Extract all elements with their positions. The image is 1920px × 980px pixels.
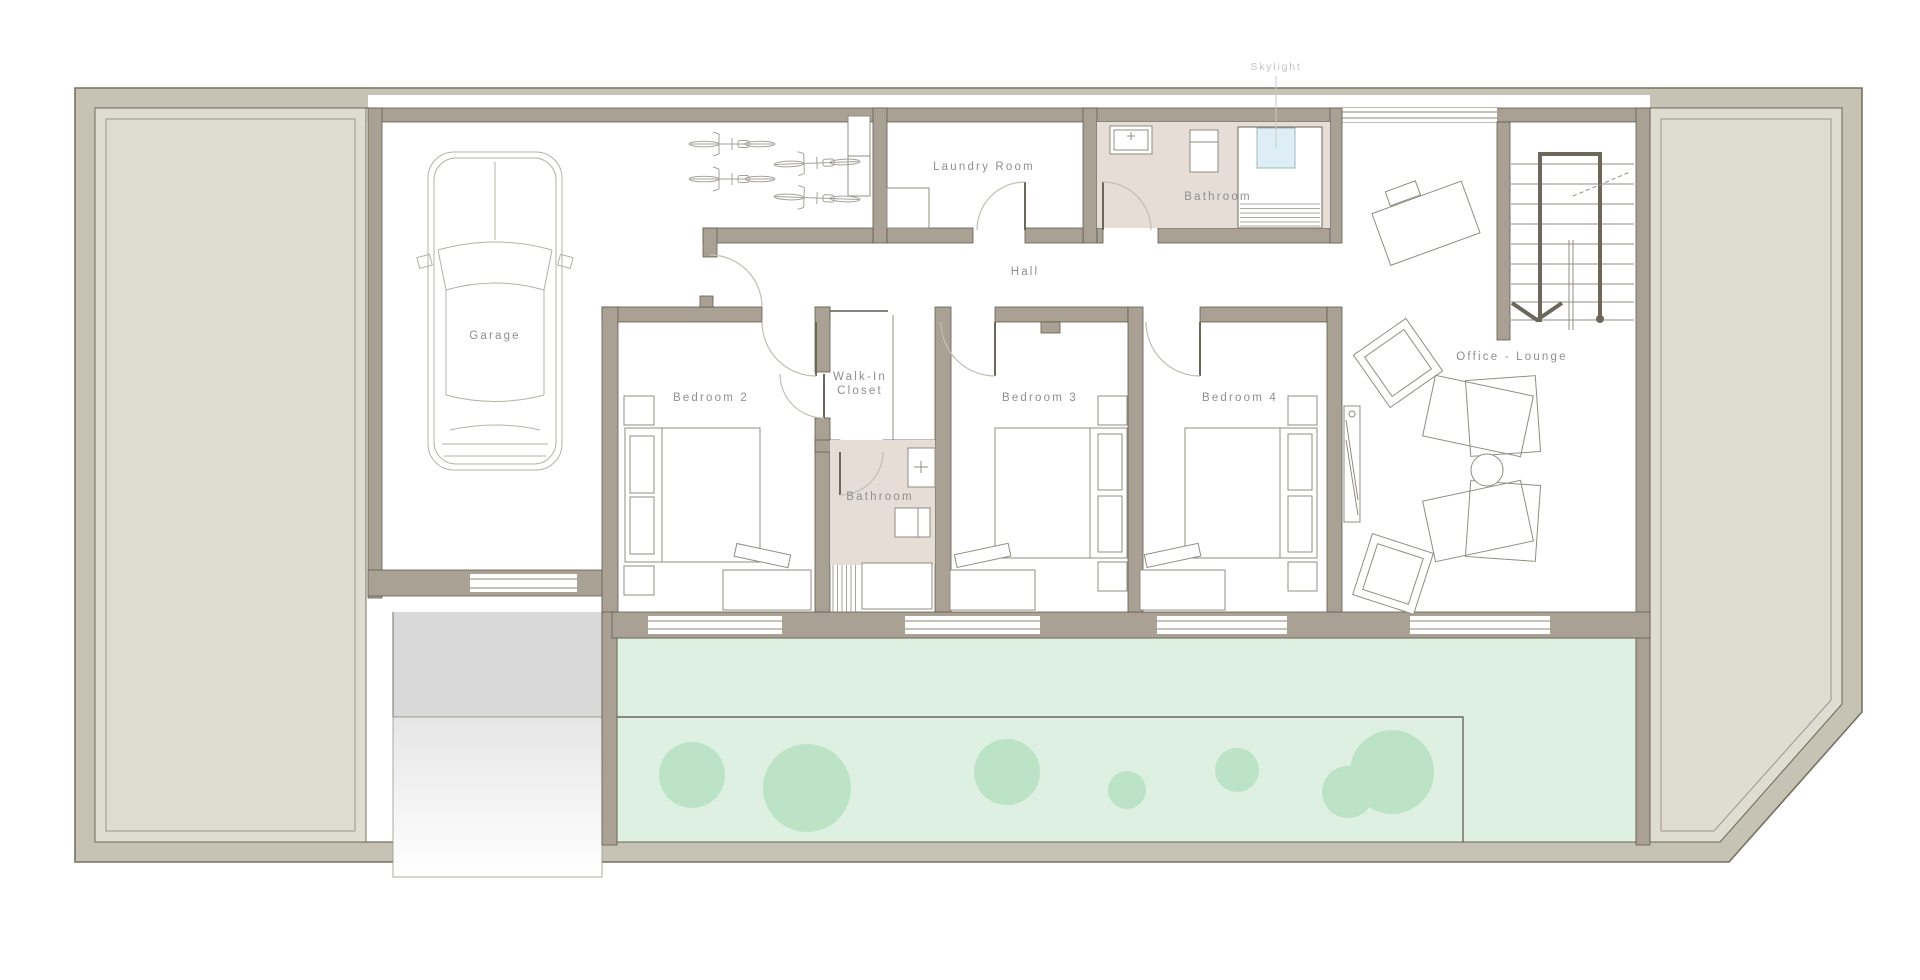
nightstand-icon xyxy=(624,396,654,425)
bathroom-top-label: Bathroom xyxy=(1184,191,1251,203)
side-table-icon xyxy=(1471,454,1503,486)
west-wall xyxy=(368,108,382,598)
nightstand-icon xyxy=(1098,562,1127,591)
hall-label: Hall xyxy=(1011,266,1040,278)
bedroom4-window xyxy=(1157,616,1287,634)
bathtub-icon xyxy=(862,563,932,609)
driveway xyxy=(393,598,602,877)
nightstand-icon xyxy=(1288,396,1317,425)
office-north-window xyxy=(1340,108,1497,122)
office-lounge-label: Office - Lounge xyxy=(1456,351,1567,363)
bedroom3-window xyxy=(905,616,1040,634)
floor-plan-page: Garage Laundry Room Bathroom Hall Bedroo… xyxy=(0,0,1920,980)
walk-in-closet-label-line2: Closet xyxy=(837,385,883,397)
garage-label: Garage xyxy=(469,330,521,342)
bedroom4-label: Bedroom 4 xyxy=(1202,392,1278,404)
floor-plan-drawing: Garage Laundry Room Bathroom Hall Bedroo… xyxy=(0,0,1920,980)
shower-skylight-area xyxy=(1238,127,1322,228)
south-wall xyxy=(612,612,1650,638)
nightstand-icon xyxy=(624,566,654,595)
bathroom-mid-label: Bathroom xyxy=(846,491,913,503)
washer-icon xyxy=(887,188,929,228)
nightstand-icon xyxy=(1098,396,1127,425)
laundry-room-label: Laundry Room xyxy=(933,161,1035,173)
right-side-yard xyxy=(1650,108,1842,842)
bedroom2-label: Bedroom 2 xyxy=(673,392,749,404)
toilet-icon xyxy=(895,508,930,537)
garage-south-wall xyxy=(368,570,612,596)
east-wall xyxy=(1636,108,1650,845)
office-window xyxy=(1410,616,1550,634)
shelf-icon xyxy=(848,116,870,196)
sink-icon xyxy=(1110,126,1152,154)
bathroom-top xyxy=(1097,122,1330,230)
toilet-icon xyxy=(1190,130,1218,172)
nightstand-icon xyxy=(1288,562,1317,591)
sideboard-icon xyxy=(1344,406,1360,522)
garden xyxy=(617,638,1636,842)
walk-in-closet-label-line1: Walk-In xyxy=(833,371,887,383)
skylight-label: Skylight xyxy=(1250,61,1301,73)
sink-icon xyxy=(908,448,935,487)
bedroom3-label: Bedroom 3 xyxy=(1002,392,1078,404)
bedroom2-window xyxy=(648,616,782,634)
left-side-yard xyxy=(95,108,366,842)
